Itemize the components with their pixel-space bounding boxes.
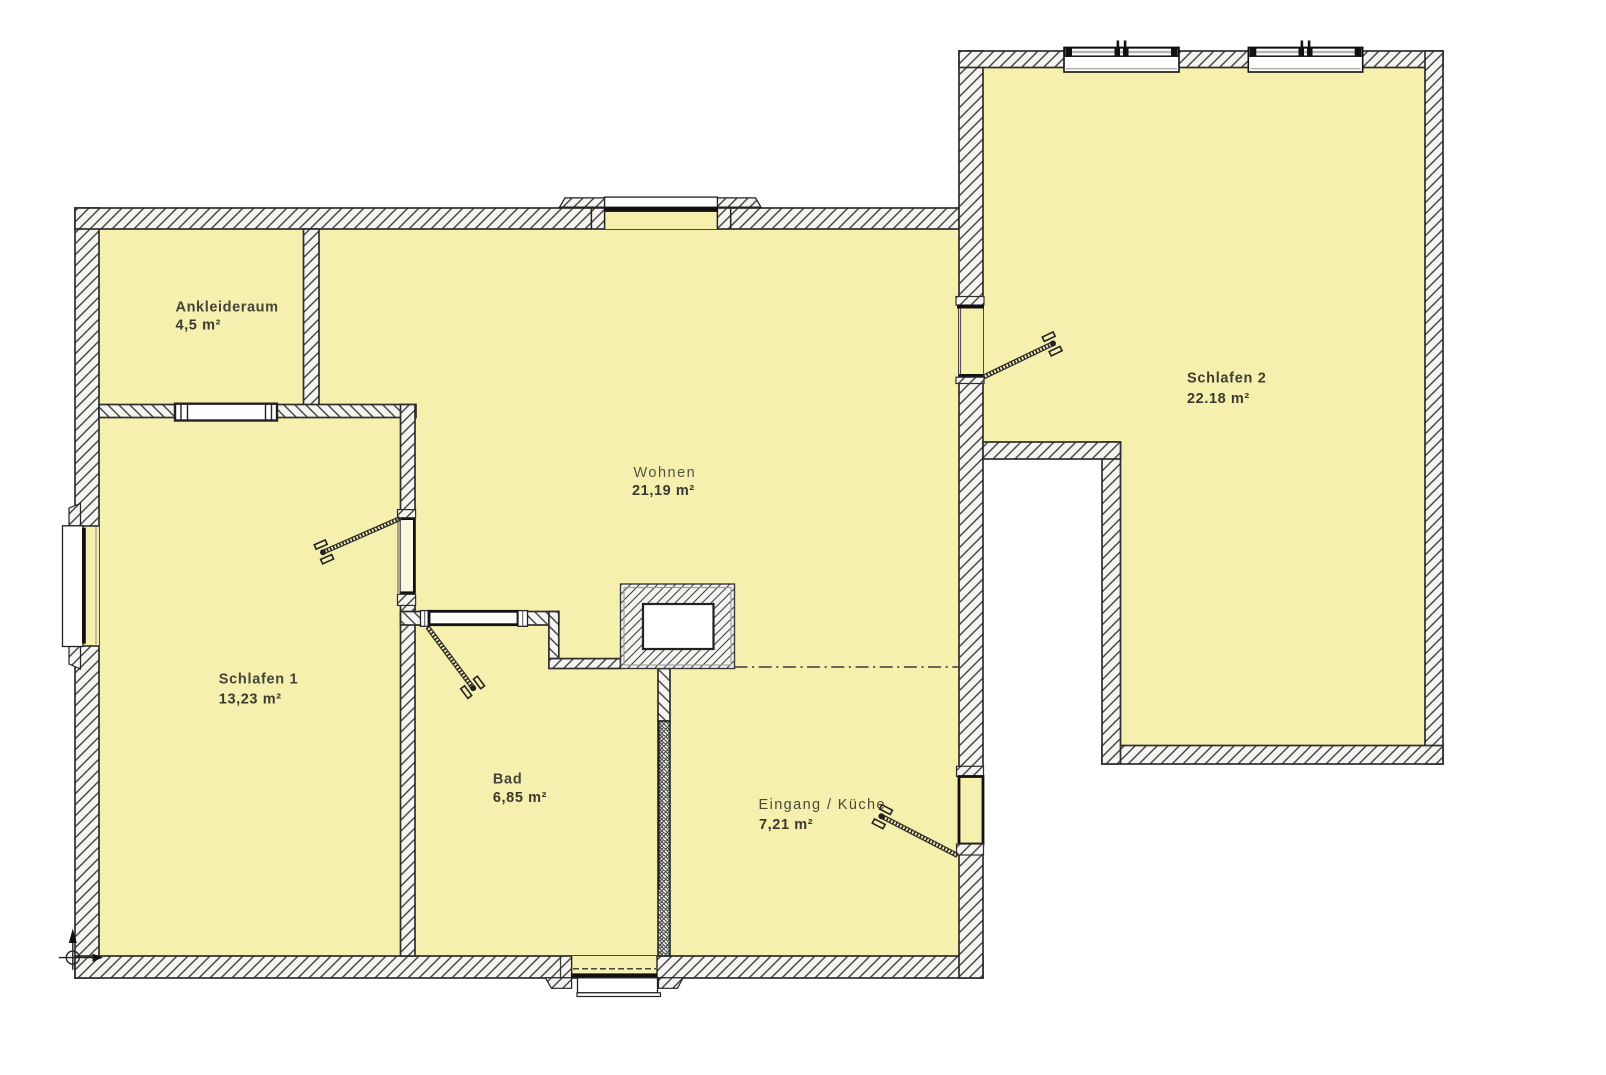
svg-text:6,85 m²: 6,85 m² (493, 790, 547, 806)
svg-text:Wohnen: Wohnen (634, 465, 697, 481)
svg-text:Bad: Bad (493, 772, 523, 788)
svg-text:13,23 m²: 13,23 m² (219, 692, 282, 708)
svg-text:Ankleideraum: Ankleideraum (176, 300, 279, 316)
svg-text:Schlafen 2: Schlafen 2 (1187, 371, 1267, 387)
svg-text:21,19 m²: 21,19 m² (632, 483, 695, 499)
svg-text:7,21 m²: 7,21 m² (759, 817, 813, 833)
svg-text:Schlafen 1: Schlafen 1 (219, 672, 299, 688)
svg-text:Eingang / Küche: Eingang / Küche (759, 797, 886, 813)
svg-text:4,5 m²: 4,5 m² (176, 318, 222, 334)
svg-text:22.18 m²: 22.18 m² (1187, 391, 1250, 407)
